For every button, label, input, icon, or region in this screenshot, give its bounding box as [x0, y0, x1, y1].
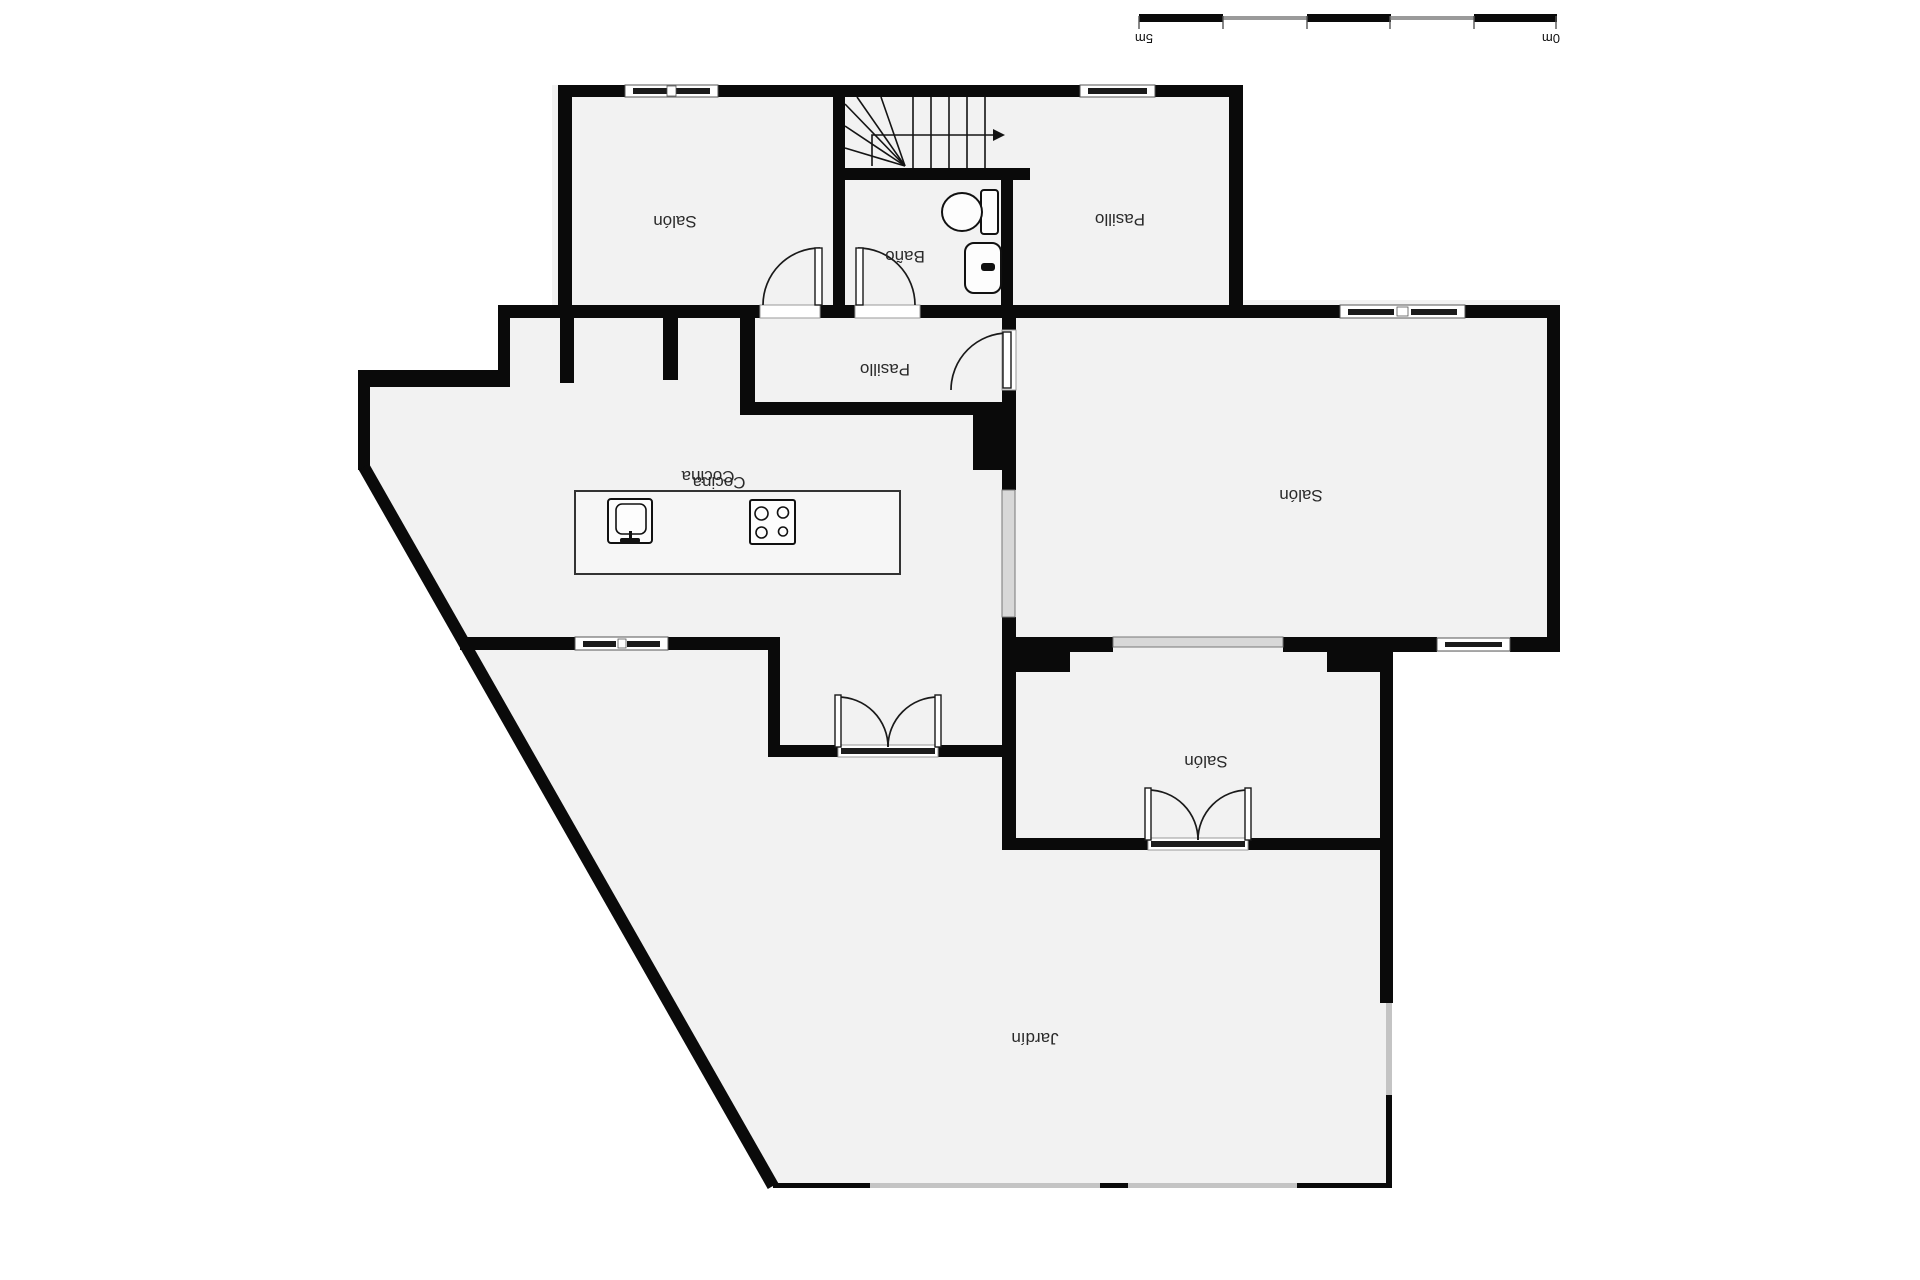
glazed-wall-vertical [1002, 490, 1015, 617]
floor-salon-right [1013, 300, 1560, 652]
toilet-icon [942, 190, 998, 234]
floor-cocina-north [498, 305, 1016, 415]
label-cocina-ghost: Cocina [692, 473, 745, 492]
kitchen-sink-icon [608, 499, 652, 543]
floor-plan: Salón Pasillo Baño Pasillo Cocina Cocina… [0, 0, 1920, 1280]
label-salon-right: Salón [1279, 486, 1322, 505]
scale-bar: 5m 0m [1135, 14, 1560, 46]
window-cocina-south [575, 637, 668, 650]
scale-left-label: 5m [1135, 31, 1153, 46]
floor-top-block [552, 85, 1243, 318]
label-pasillo-top: Pasillo [1095, 210, 1145, 229]
label-bano: Baño [885, 247, 925, 266]
floor-areas [364, 85, 1560, 1188]
window-salon-top-left [625, 85, 718, 97]
window-pasillo-top [1080, 85, 1155, 97]
stove-icon [750, 500, 795, 544]
kitchen-island [575, 491, 900, 574]
scale-right-label: 0m [1542, 31, 1560, 46]
label-pasillo-middle: Pasillo [860, 360, 910, 379]
floor-plan-page: Salón Pasillo Baño Pasillo Cocina Cocina… [0, 0, 1920, 1280]
label-salon-top-left: Salón [653, 212, 696, 231]
label-salon-bottom: Salón [1184, 752, 1227, 771]
label-jardin: Jardín [1011, 1029, 1058, 1048]
sink-icon [965, 243, 1001, 293]
glazed-wall-horizontal [1113, 637, 1283, 647]
window-salon-right-north [1340, 305, 1465, 318]
window-salon-right-south [1437, 638, 1510, 651]
